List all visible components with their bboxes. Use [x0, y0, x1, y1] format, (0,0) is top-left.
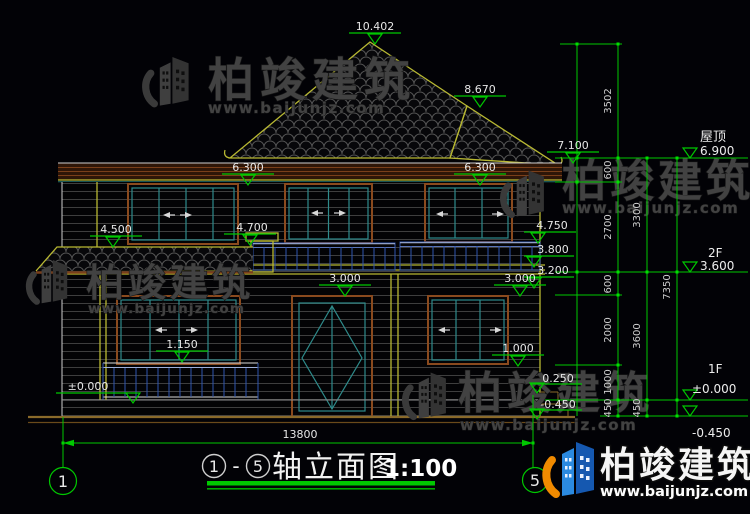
- f1-value: ±0.000: [692, 382, 736, 396]
- f1-label: 1F: [708, 362, 723, 376]
- dim-3300: 3300: [632, 202, 643, 227]
- watermark-brand: 柏竣建筑: [86, 261, 254, 305]
- mark-porch: 4.500: [100, 223, 132, 236]
- dim-3502: 3502: [603, 88, 614, 113]
- mark-ground: -0.450: [540, 398, 575, 411]
- brand-logo-color: 柏竣建筑 www.baijunjz.com: [546, 442, 750, 500]
- dim-3600: 3600: [632, 323, 643, 348]
- mark-win2f-left: 6.300: [232, 161, 264, 174]
- title-underline: [207, 481, 435, 486]
- title-axis-start: 1: [209, 457, 219, 476]
- mark-rail2f-right: 4.750: [536, 219, 568, 232]
- ground-value: -0.450: [692, 426, 731, 440]
- title-scale: 1:100: [384, 456, 457, 482]
- dim-450-b: 450: [632, 398, 643, 417]
- dim-2000: 2000: [603, 317, 614, 342]
- elevation-drawing: 柏竣建筑 www.baijunjz.com 柏竣建筑 www.baijunjz.…: [0, 0, 750, 514]
- axis-bubble-left: 1: [50, 468, 77, 495]
- mark-ridge: 8.670: [464, 83, 496, 96]
- watermark-url: www.baijunjz.com: [562, 199, 739, 217]
- brand-logo-icon: [546, 442, 594, 496]
- roof-level-value: 6.900: [700, 144, 734, 158]
- dim-7350: 7350: [662, 274, 673, 299]
- mark-rail1f: 1.150: [166, 338, 198, 351]
- brand-url: www.baijunjz.com: [600, 484, 748, 500]
- dim-2700: 2700: [603, 214, 614, 239]
- watermark-url: www.baijunjz.com: [208, 99, 385, 117]
- mark-sill1f: 1.000: [502, 342, 534, 355]
- dim-600-b: 600: [603, 274, 614, 293]
- mark-right-eave: 7.100: [557, 139, 589, 152]
- title-separator: -: [232, 454, 239, 478]
- brand-logo-icon: [146, 57, 189, 106]
- title-underline-thin: [207, 488, 435, 490]
- f2-label: 2F: [708, 246, 723, 260]
- mark-rail2f-center: 4.700: [236, 221, 268, 234]
- axis-number: 5: [530, 471, 540, 490]
- dim-overall-width: 13800: [283, 428, 318, 441]
- axis-number: 1: [58, 472, 68, 491]
- brand-logo-icon: [29, 260, 67, 303]
- dim-450-a: 450: [603, 398, 614, 417]
- mark-platform: 0.250: [542, 372, 574, 385]
- roof-level-label: 屋顶: [700, 130, 726, 145]
- dim-1000: 1000: [603, 369, 614, 394]
- watermark-top: 柏竣建筑 www.baijunjz.com: [146, 53, 416, 117]
- mark-beam: 3.200: [537, 264, 569, 277]
- title-text: 轴立面图: [272, 450, 400, 485]
- mark-win2f-right: 6.300: [464, 161, 496, 174]
- mark-floor1f: ±0.000: [68, 380, 109, 393]
- mark-win1f-right-top: 3.000: [504, 272, 536, 285]
- watermark-url: www.baijunjz.com: [88, 301, 245, 317]
- mark-peak: 10.402: [356, 20, 395, 33]
- mark-door-top: 3.000: [329, 272, 361, 285]
- mark-slab: 3.800: [537, 243, 569, 256]
- brand-name: 柏竣建筑: [600, 445, 750, 486]
- cad-elevation-screenshot: 柏竣建筑 www.baijunjz.com 柏竣建筑 www.baijunjz.…: [0, 0, 750, 514]
- drawing-title: 1 - 5 轴立面图 1:100: [203, 450, 458, 490]
- title-axis-end: 5: [253, 457, 263, 476]
- f2-value: 3.600: [700, 259, 734, 273]
- dim-600-a: 600: [603, 160, 614, 179]
- watermark-url: www.baijunjz.com: [460, 416, 637, 434]
